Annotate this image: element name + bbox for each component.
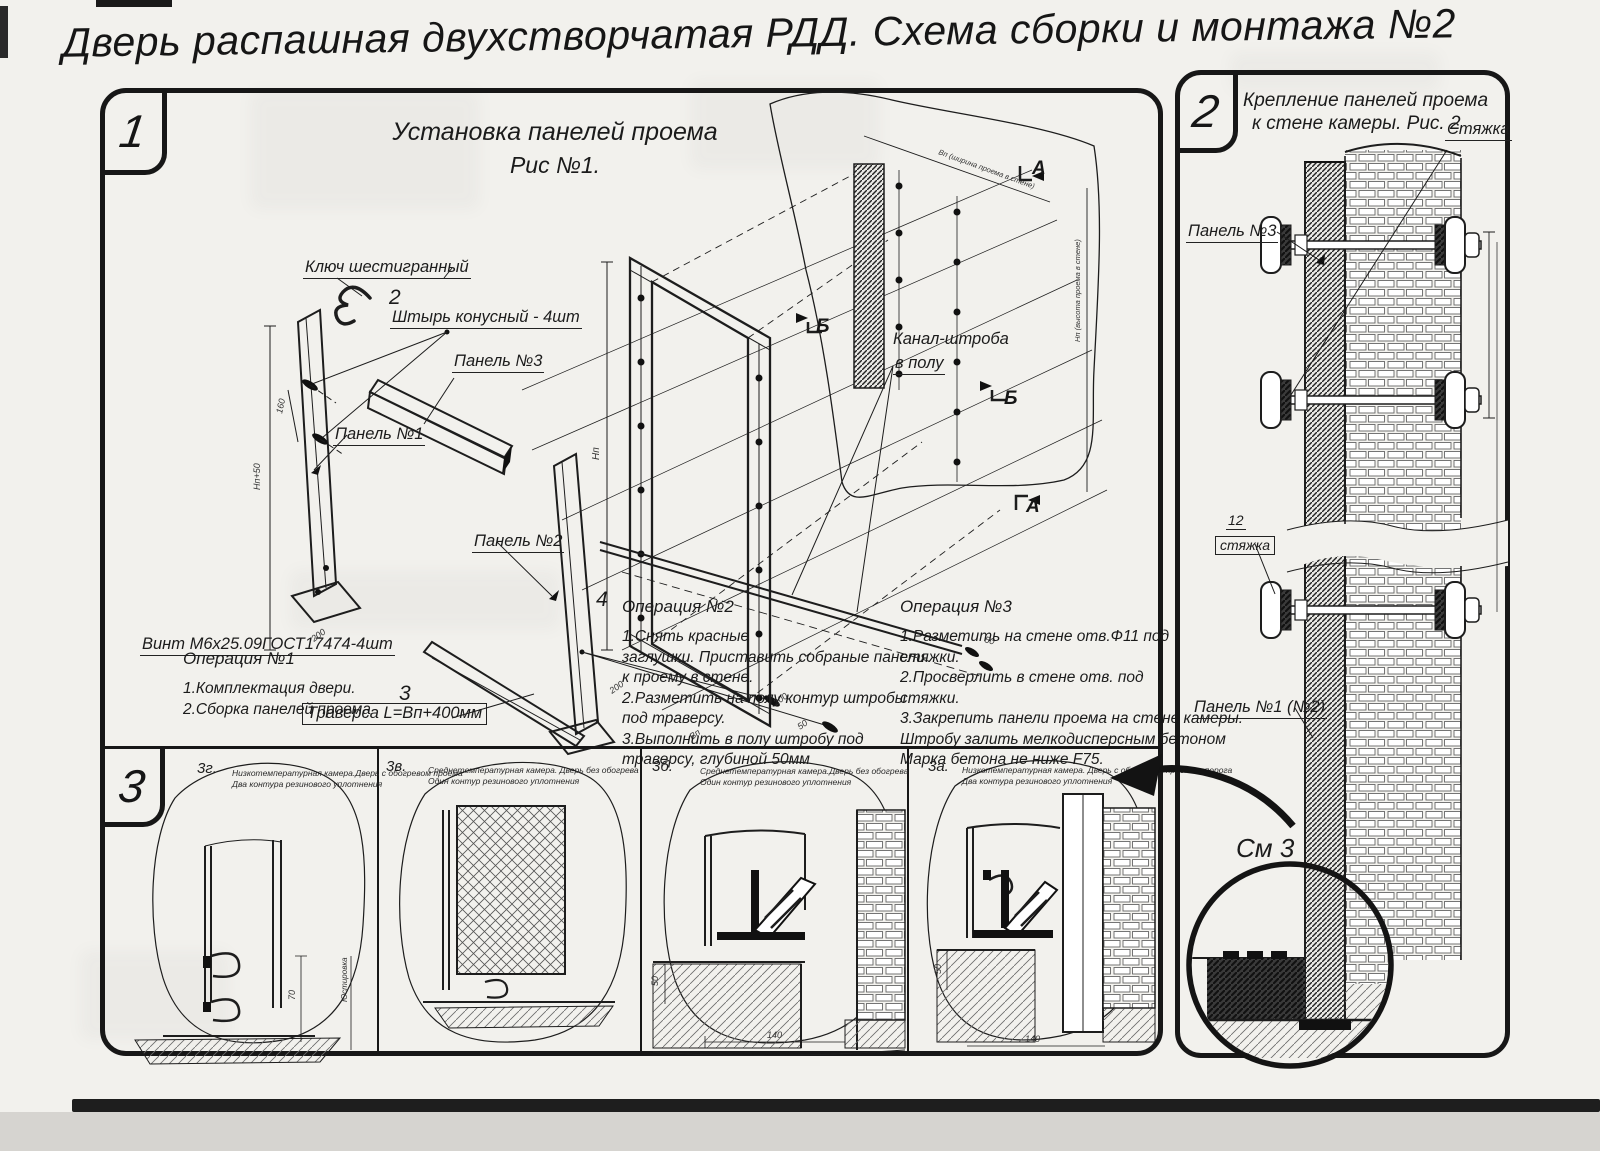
label-channel-2: в полу: [893, 354, 945, 375]
dim-3a-50: 50: [933, 964, 943, 974]
dim-panel-height: Hп+50: [252, 463, 262, 490]
label-tie-small: стяжка: [1215, 536, 1275, 555]
label-see-detail3: См 3: [1236, 834, 1294, 864]
label-hex-key: Ключ шестигранный: [303, 258, 471, 279]
operation-2-line: под траверсу.: [622, 709, 925, 729]
scan-mark: [0, 6, 8, 58]
section3-divider: [104, 746, 1160, 749]
section-marker-a2: А: [1026, 496, 1040, 518]
operation-2-title: Операция №2: [622, 596, 925, 618]
section-marker-b1: Б: [816, 316, 829, 338]
section2-heading2: к стене камеры. Рис. 2: [1252, 113, 1461, 135]
operation-2-line: 1.Снять красные: [622, 627, 925, 647]
dim-frame-height: Hп: [591, 447, 602, 460]
dim-160: 160: [274, 398, 287, 415]
label-panel1: Панель №1: [333, 425, 425, 446]
section2-heading: Крепление панелей проема: [1243, 90, 1488, 112]
callout-2: 2: [389, 286, 401, 310]
dim-3b-50: 50: [650, 976, 660, 986]
operation-1: Операция №1 1.Комплектация двери. 2.Сбор…: [183, 648, 371, 720]
note-3g-adjust: Юстировка: [340, 957, 349, 1002]
operation-2-line: заглушки. Приставить собраные панели: [622, 648, 925, 668]
dim-opening-height-note: Нп (высота проема в стене): [1073, 239, 1082, 342]
operation-1-line: 2.Сборка панелей проема: [183, 700, 371, 720]
scan-mark: [96, 0, 172, 7]
label-channel-1: Канал-штроба: [893, 330, 1009, 349]
detail-arrow: [1108, 742, 1298, 832]
sheet-bottom-edge: [72, 1099, 1600, 1112]
callout-4: 4: [596, 588, 608, 612]
callout-12: 12: [1226, 512, 1246, 530]
drawing-sheet: Дверь распашная двухстворчатая РДД. Схем…: [0, 0, 1600, 1151]
section-marker-a1: А: [1032, 158, 1046, 180]
operation-1-line: 1.Комплектация двери.: [183, 679, 371, 699]
label-panel3-sec2: Панель №3: [1186, 222, 1278, 243]
dim-3g-70: 70: [287, 990, 297, 1000]
label-tie: Стяжка: [1445, 120, 1512, 141]
label-panel2: Панель №2: [472, 532, 564, 553]
dim-opening-width-note: Вп (ширина проема в стене): [937, 147, 1036, 190]
operation-2: Операция №2 1.Снять красные заглушки. Пр…: [622, 596, 925, 771]
operation-2-line: 2.Разметить на полу контур штробы: [622, 689, 925, 709]
dim-3b-140: 140: [767, 1030, 782, 1040]
label-pin: Штырь конусный - 4шт: [390, 308, 582, 329]
figure2-drawing: [1177, 72, 1508, 1058]
operation-2-line: к проему в стене.: [622, 668, 925, 688]
label-panel12: Панель №1 (№2): [1192, 698, 1327, 719]
scan-background: [0, 1112, 1600, 1151]
label-panel3: Панель №3: [452, 352, 544, 373]
section-marker-b2: Б: [1004, 388, 1017, 410]
dim-3a-140: 140: [1025, 1034, 1040, 1044]
section3-sketches: 70 Юстировка 50 140 50 140: [105, 750, 1161, 1056]
operation-1-title: Операция №1: [183, 648, 371, 670]
